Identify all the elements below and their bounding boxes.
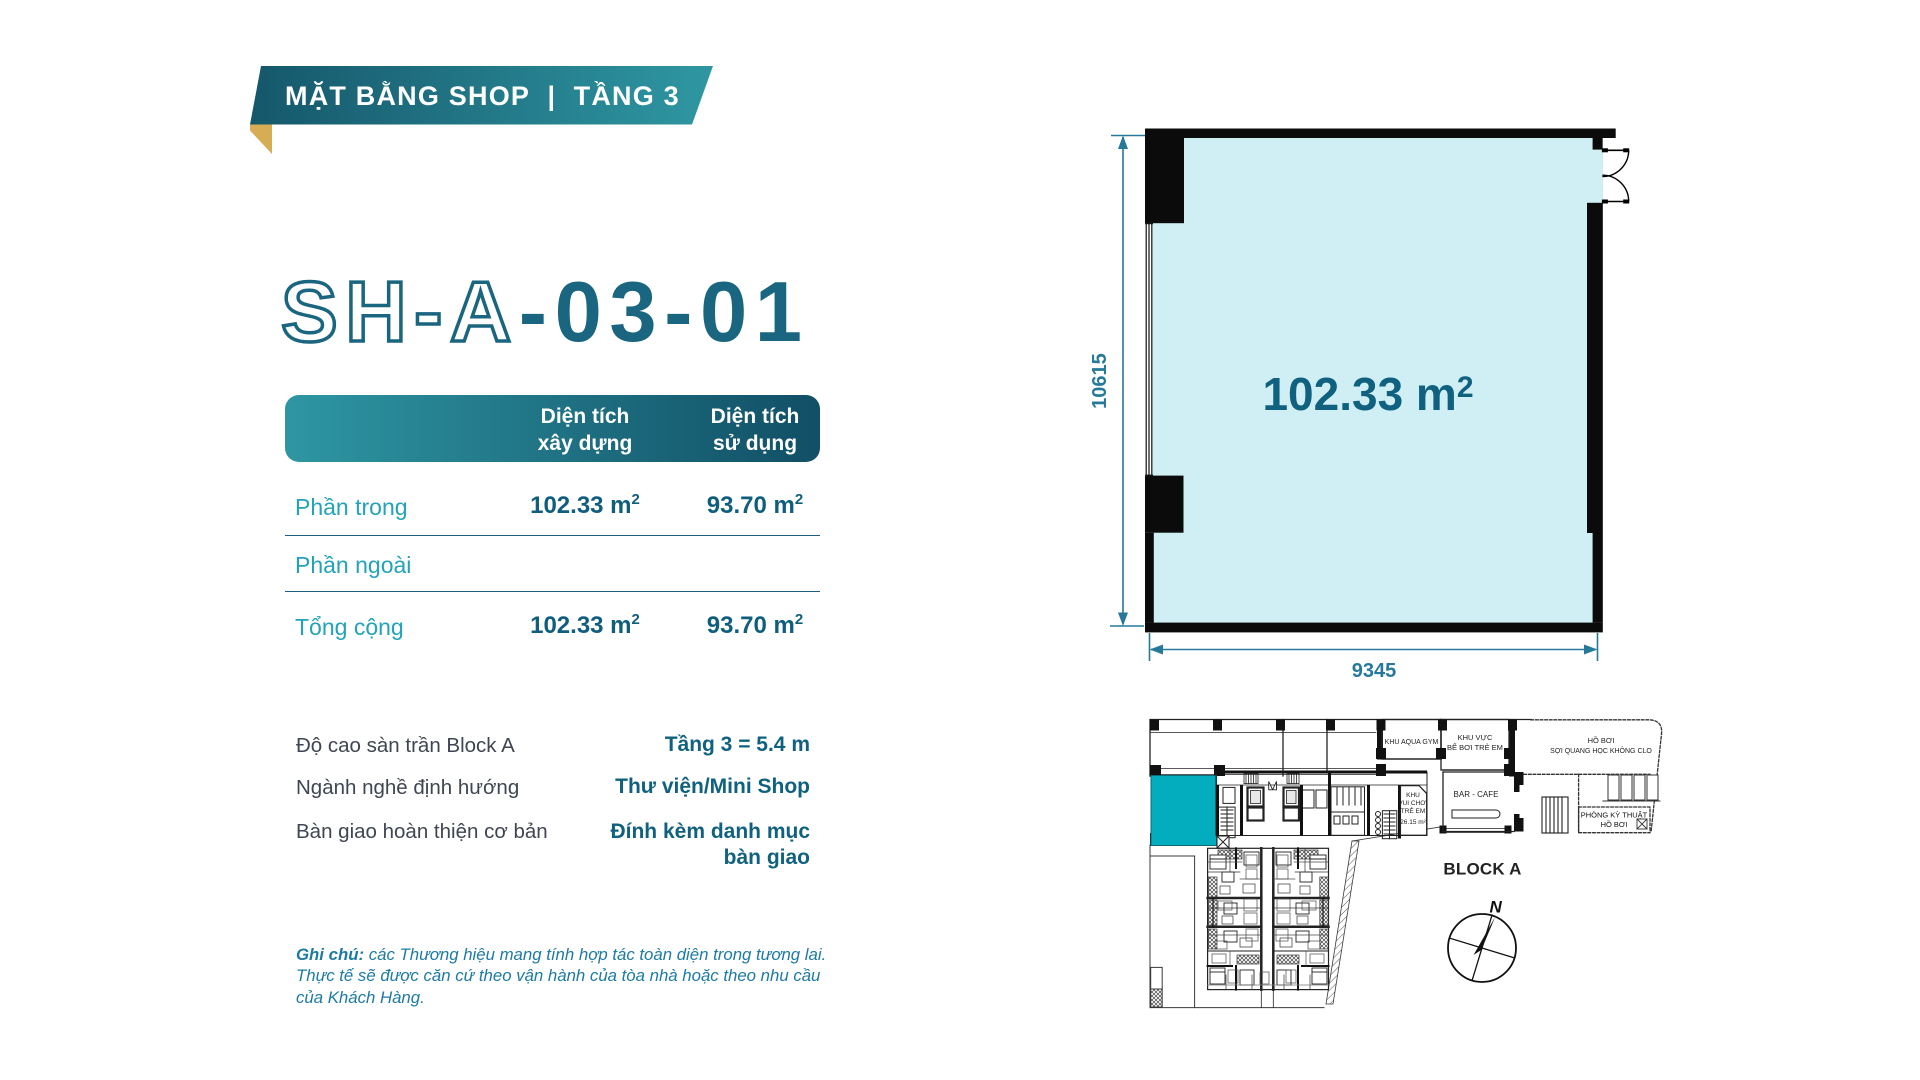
- svg-text:26.15 m²: 26.15 m²: [1400, 819, 1426, 826]
- svg-text:TRẺ EM: TRẺ EM: [1401, 806, 1426, 815]
- svg-text:BAR - CAFE: BAR - CAFE: [1454, 790, 1499, 799]
- svg-text:BLOCK A: BLOCK A: [1443, 860, 1521, 879]
- svg-text:HỒ BƠI: HỒ BƠI: [1601, 819, 1628, 829]
- svg-text:VUI CHƠI: VUI CHƠI: [1398, 800, 1428, 807]
- svg-text:BỂ BƠI TRẺ EM: BỂ BƠI TRẺ EM: [1447, 743, 1503, 752]
- svg-text:102.33 m2: 102.33 m2: [1262, 368, 1473, 420]
- svg-text:KHU AQUA GYM: KHU AQUA GYM: [1385, 739, 1439, 746]
- svg-text:N: N: [1489, 898, 1502, 917]
- svg-text:10615: 10615: [1089, 353, 1111, 409]
- svg-text:9345: 9345: [1352, 660, 1397, 682]
- svg-text:SỢI QUANG HỌC KHÔNG CLO: SỢI QUANG HỌC KHÔNG CLO: [1550, 746, 1652, 755]
- svg-text:HỒ BƠI: HỒ BƠI: [1588, 735, 1615, 745]
- svg-text:KHU: KHU: [1406, 792, 1420, 799]
- svg-text:KHU VỰC: KHU VỰC: [1458, 733, 1493, 742]
- svg-text:PHÒNG KỲ THUẬT: PHÒNG KỲ THUẬT: [1581, 811, 1648, 820]
